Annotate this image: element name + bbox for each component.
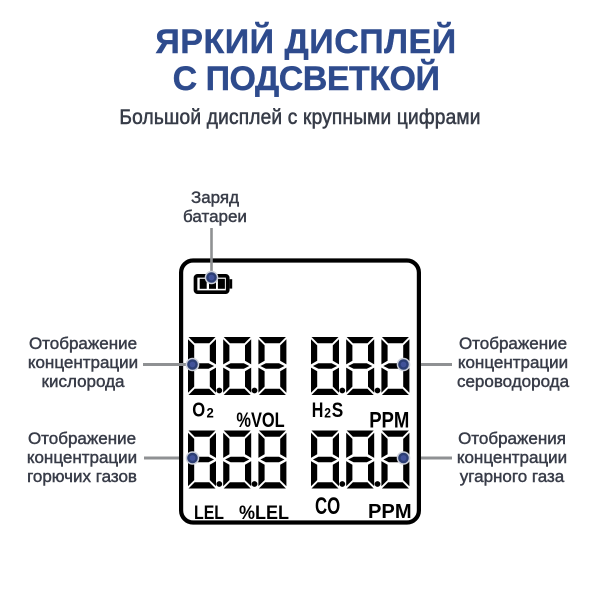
svg-text:H: H <box>312 399 324 422</box>
svg-text:2: 2 <box>324 406 331 421</box>
svg-text:2: 2 <box>207 405 214 420</box>
svg-text:%LEL: %LEL <box>239 502 289 524</box>
svg-text:%VOL: %VOL <box>236 409 284 432</box>
svg-text:LEL: LEL <box>194 503 224 524</box>
svg-text:PPM: PPM <box>369 408 409 433</box>
svg-text:CO: CO <box>315 493 340 520</box>
svg-text:O: O <box>192 399 205 421</box>
svg-text:S: S <box>332 399 344 422</box>
svg-text:PPM: PPM <box>368 501 412 523</box>
